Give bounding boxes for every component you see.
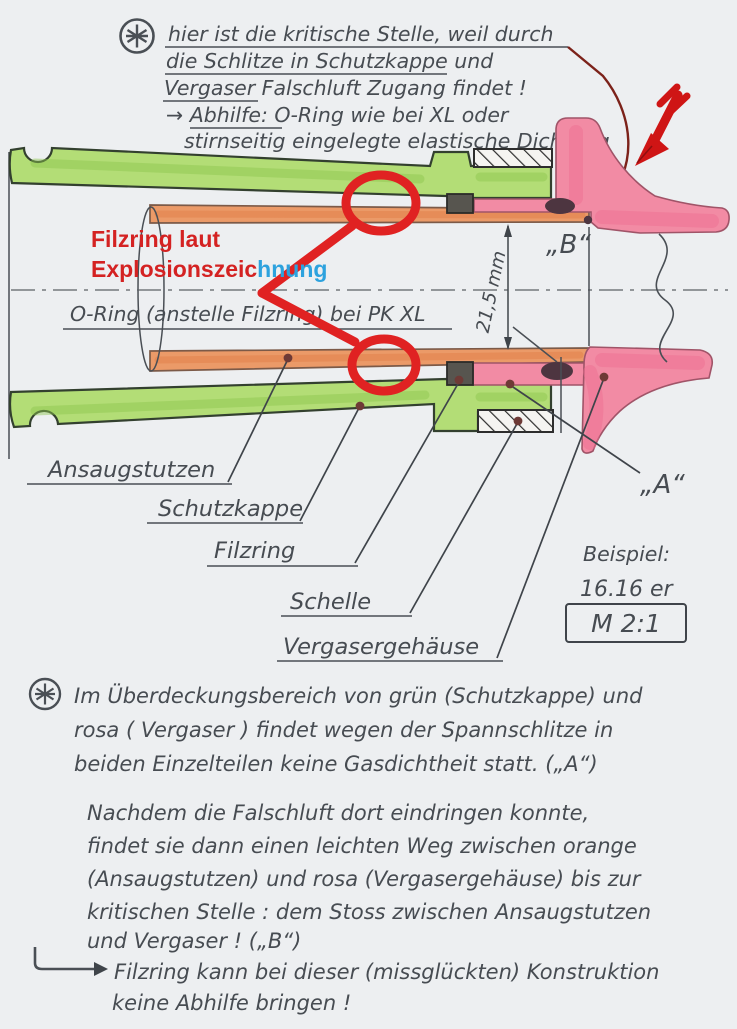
para2-line3: (Ansaugstutzen) und rosa (Vergasergehäus… (87, 867, 642, 891)
label-vergasergehaeuse: Vergasergehäuse (283, 634, 479, 660)
schelle-upper (474, 149, 552, 167)
para1-line2: rosa ( Vergaser ) findet wegen der Spann… (74, 718, 613, 742)
red-note-line2-blue: hnung (257, 256, 327, 282)
para3-line2: keine Abhilfe bringen ! (112, 991, 351, 1015)
example-line2: 16.16 er (580, 577, 675, 602)
para2-line2: findet sie dann einen leichten Weg zwisc… (87, 834, 637, 858)
label-schelle: Schelle (290, 589, 371, 615)
point-a-label: „A“ (640, 470, 685, 500)
top-note-line3: Vergaser Falschluft Zugang findet ! (164, 76, 527, 100)
label-ansaugstutzen: Ansaugstutzen (46, 457, 215, 483)
filzring-upper (447, 194, 473, 213)
break-wave-line (656, 234, 673, 362)
label-schutzkappe: Schutzkappe (158, 496, 303, 522)
cross-section-diagram: 21,5 mm „B“ „A“ O-Ring (anstelle Filzrin… (9, 118, 729, 661)
part-labels: Ansaugstutzen Schutzkappe Filzring Schel… (27, 457, 503, 661)
asterisk-marker-bottom (30, 679, 60, 709)
asterisk-marker-top (121, 20, 154, 53)
para1-line1: Im Überdeckungsbereich von grün (Schutzk… (74, 683, 643, 708)
para2-line1: Nachdem die Falschluft dort eindringen k… (87, 801, 589, 825)
bottom-notes: Im Überdeckungsbereich von grün (Schutzk… (30, 679, 659, 1015)
red-dart-arrow (635, 87, 687, 166)
para2-line5: und Vergaser ! („B“) (87, 929, 301, 953)
example-line1: Beispiel: (583, 542, 670, 566)
bore-note: O-Ring (anstelle Filzring) bei PK XL (70, 302, 426, 326)
point-b-label: „B“ (546, 230, 591, 260)
top-note-line2: die Schlitze in Schutzkappe und (166, 49, 494, 73)
red-note-line2-red: Explosionszeic (91, 256, 257, 282)
para1-line3: beiden Einzelteilen keine Gasdichtheit s… (74, 752, 598, 776)
label-filzring: Filzring (214, 538, 295, 564)
seal-blob-lower (541, 362, 573, 380)
red-note-line1: Filzring laut (91, 226, 220, 252)
top-note-line1: hier ist die kritische Stelle, weil durc… (168, 22, 554, 46)
scale-label: M 2:1 (591, 609, 661, 638)
top-note-line4: → Abhilfe: O-Ring wie bei XL oder (166, 103, 510, 127)
red-note-line2: Explosionszeichnung (91, 256, 327, 282)
joint-gap-point-b (584, 216, 592, 224)
diagram-canvas: hier ist die kritische Stelle, weil durc… (0, 0, 737, 1029)
para3-line1: Filzring kann bei dieser (missglückten) … (114, 960, 659, 984)
seal-blob-upper (545, 198, 575, 214)
scanned-sketch-page: hier ist die kritische Stelle, weil durc… (0, 0, 737, 1029)
dimension-label: 21,5 mm (473, 249, 511, 335)
example-scale: Beispiel: 16.16 er M 2:1 (566, 542, 686, 642)
para2-line4: kritischen Stelle : dem Stoss zwischen A… (87, 900, 651, 924)
dimension-21-5: 21,5 mm (473, 224, 512, 350)
